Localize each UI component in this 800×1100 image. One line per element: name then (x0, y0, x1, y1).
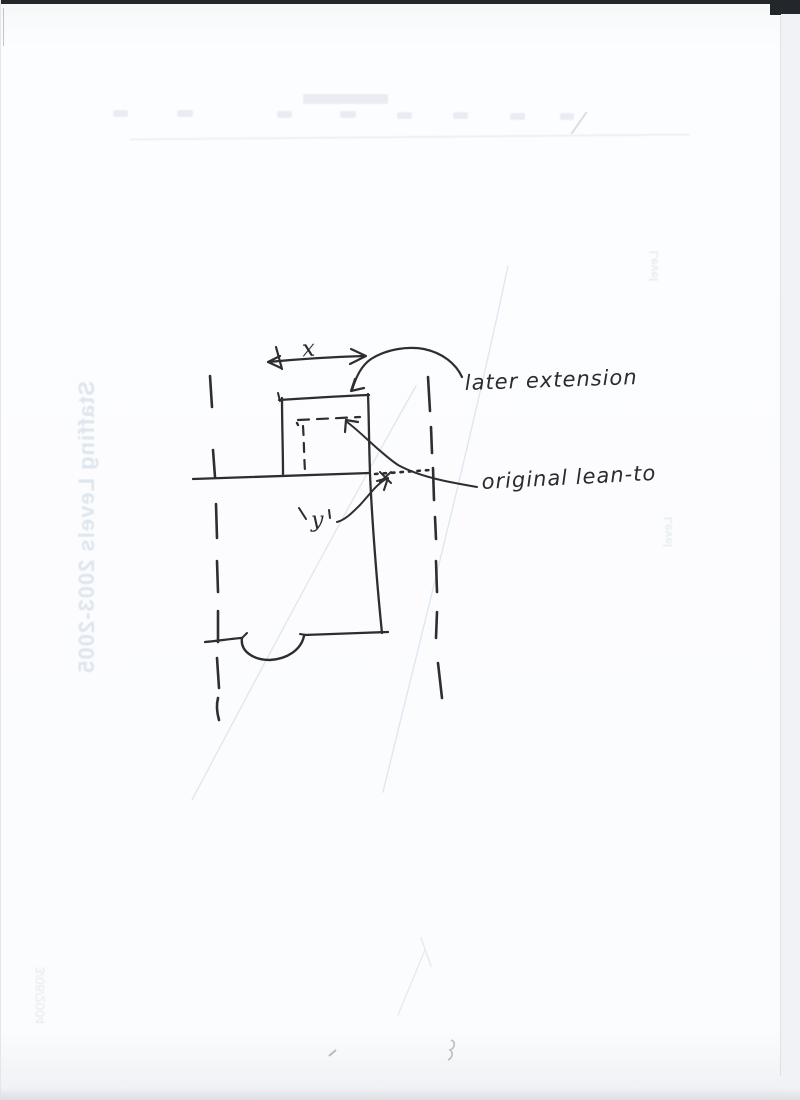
boundary-dash (217, 561, 218, 592)
lean-to-dash-dot (297, 423, 298, 425)
speck-mark-left (329, 1050, 336, 1056)
annotation-later-extension: later extension (464, 365, 638, 395)
main-wall-line (193, 473, 370, 479)
annotation-original-lean-to: original lean-to (481, 461, 657, 494)
building-right-edge (370, 474, 382, 633)
boundary-dash (436, 561, 437, 592)
left-boundary-dashed-line (210, 376, 219, 720)
boundary-dash (436, 612, 437, 638)
bottom-wall-left (205, 638, 241, 642)
boundary-dash (210, 376, 212, 407)
original-lean-to-pointer-curve (347, 422, 477, 487)
right-boundary-dashed-line (428, 377, 442, 698)
boundary-dash (435, 517, 436, 539)
boundary-dash (431, 427, 432, 453)
bottom-wall-right (304, 632, 388, 635)
extension-box-top (279, 395, 369, 400)
boundary-dash (213, 450, 215, 477)
later-extension-pointer-curve (352, 348, 462, 390)
boundary-dash (217, 658, 219, 688)
faint-marks-bottom (398, 938, 431, 1015)
boundary-dash (216, 504, 217, 538)
lean-to-dashed-top (298, 417, 360, 420)
floor-plan-sketch: x later extension original lean-to y (0, 0, 800, 1100)
faint-diagonal-line-right (383, 266, 508, 792)
boundary-dash (428, 377, 430, 411)
boundary-dash (217, 698, 219, 720)
extension-box-right (368, 394, 370, 472)
boundary-dash (433, 468, 434, 500)
extension-box-left (282, 398, 283, 474)
dotted-line (375, 470, 430, 474)
label-y: y (310, 508, 324, 533)
scanned-page: Staffing Levels 2003-2005 3/08/2004 Leve… (0, 0, 800, 1100)
boundary-dash (438, 663, 442, 698)
dimension-line (268, 356, 364, 362)
bay-curve-end-ticks (242, 633, 306, 638)
dimension-label-x: x (301, 336, 316, 363)
lean-to-dashed-left (303, 426, 305, 471)
speck-mark-right (448, 1040, 454, 1060)
